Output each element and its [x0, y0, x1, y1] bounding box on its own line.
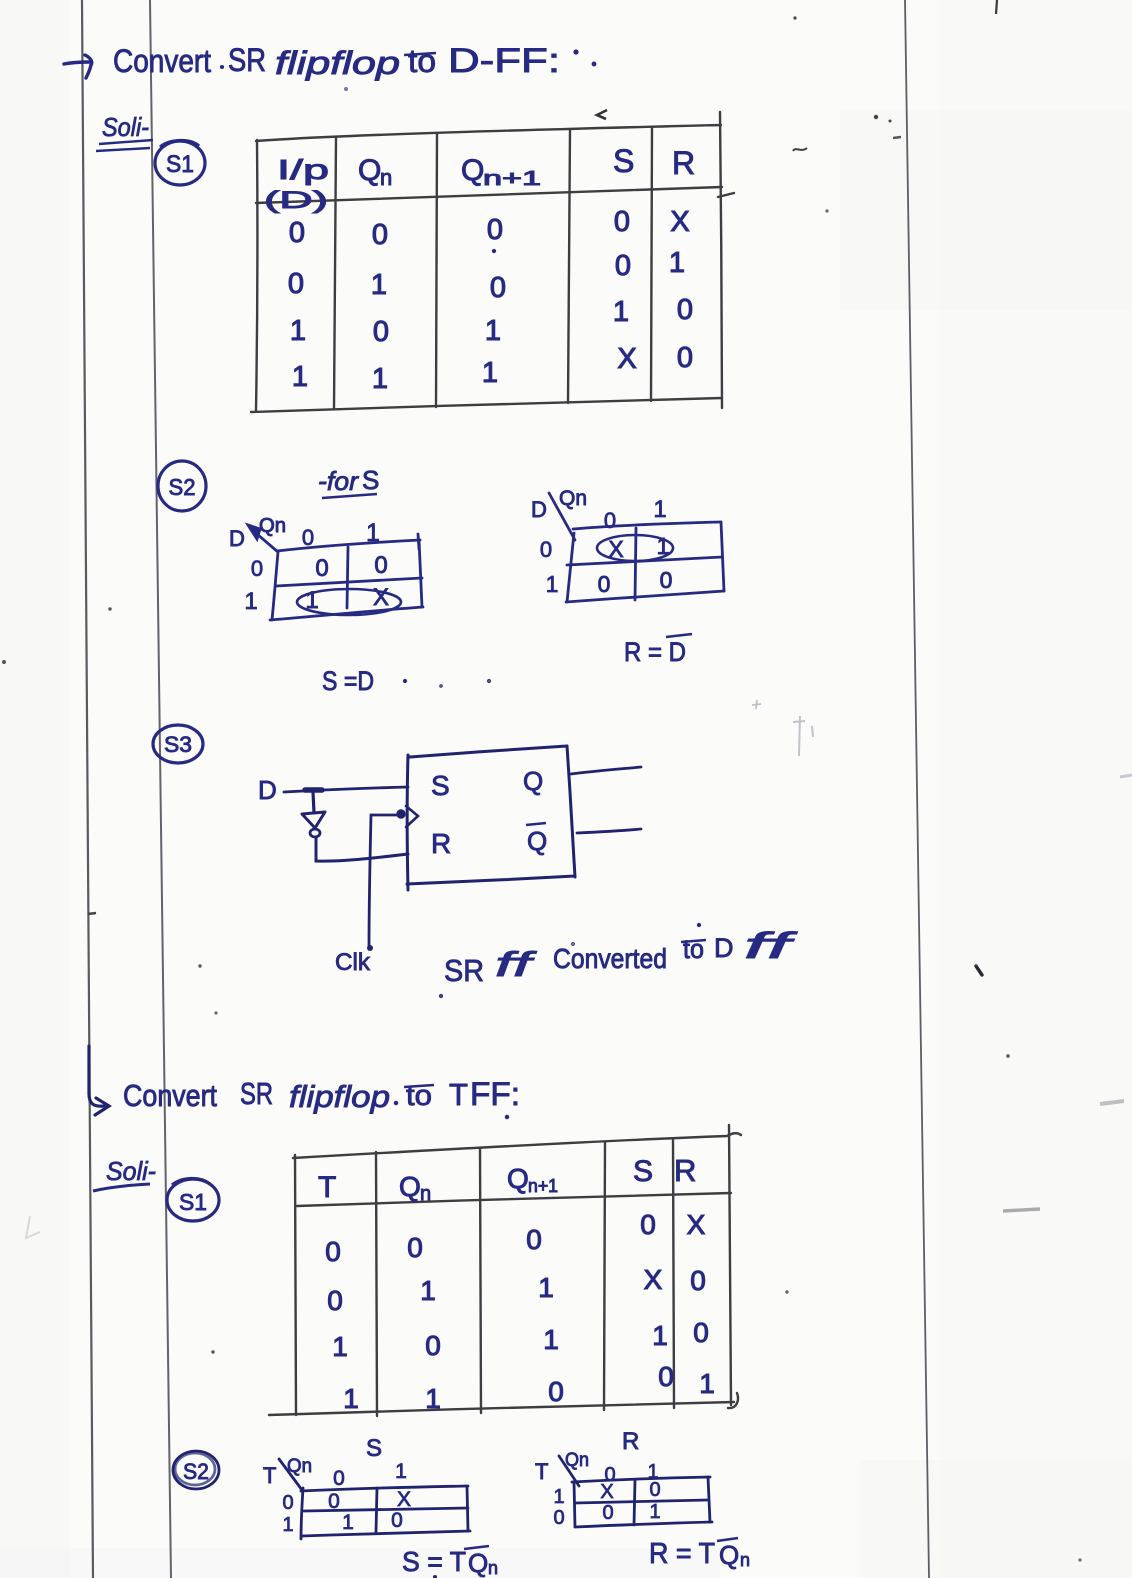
svg-text:T: T: [263, 1463, 276, 1488]
svg-text:0: 0: [548, 1376, 564, 1407]
svg-text:1: 1: [342, 1511, 354, 1534]
svg-text:X: X: [687, 1209, 706, 1240]
svg-text:0: 0: [690, 1265, 706, 1296]
svg-text:0: 0: [374, 552, 387, 579]
svg-text:Qn: Qn: [287, 1456, 312, 1477]
svg-text:flipflop: flipflop: [275, 45, 400, 81]
svg-text:S: S: [633, 1155, 653, 1188]
svg-text:1: 1: [292, 361, 308, 393]
svg-text:0: 0: [425, 1330, 441, 1361]
svg-text:0: 0: [251, 556, 263, 581]
svg-text:0: 0: [598, 571, 611, 597]
svg-text:1: 1: [543, 1324, 559, 1355]
svg-text:R: R: [622, 1428, 639, 1455]
svg-text:S1: S1: [179, 1189, 207, 1215]
svg-text:n+1: n+1: [528, 1176, 558, 1196]
svg-text:S: S: [362, 465, 379, 495]
svg-text:Q: Q: [719, 1540, 739, 1570]
svg-text:n+1: n+1: [483, 168, 541, 190]
svg-text:1: 1: [425, 1383, 441, 1414]
svg-text:X: X: [670, 206, 689, 238]
svg-text:1: 1: [485, 315, 501, 347]
svg-text:1: 1: [395, 1460, 407, 1483]
svg-text:Q: Q: [399, 1171, 421, 1202]
svg-text:n: n: [380, 165, 392, 190]
svg-text:-for: -for: [318, 466, 359, 496]
svg-text:0: 0: [614, 206, 630, 238]
svg-text:Soli-: Soli-: [106, 1156, 156, 1186]
svg-text:1: 1: [244, 588, 257, 615]
svg-text:1: 1: [669, 247, 685, 279]
svg-text:D: D: [714, 933, 734, 963]
svg-text:D: D: [531, 497, 547, 522]
svg-text:0: 0: [658, 1361, 674, 1392]
svg-text:0: 0: [553, 1507, 564, 1529]
svg-text:SR: SR: [228, 42, 266, 78]
svg-text:1: 1: [420, 1275, 436, 1306]
svg-text:0: 0: [373, 316, 389, 348]
svg-text:S3: S3: [164, 732, 192, 757]
svg-text:0: 0: [289, 217, 305, 249]
svg-text:n: n: [420, 1183, 431, 1205]
svg-text:1: 1: [653, 496, 666, 523]
svg-text:1: 1: [332, 1331, 348, 1362]
svg-text:n: n: [740, 1550, 750, 1570]
svg-text:0: 0: [615, 250, 631, 282]
svg-text:Convert: Convert: [113, 43, 211, 79]
svg-text:D: D: [258, 775, 277, 805]
svg-text:1: 1: [546, 571, 559, 597]
svg-text:1: 1: [371, 269, 387, 301]
svg-text:1: 1: [649, 1501, 660, 1523]
svg-text:1: 1: [482, 357, 498, 389]
svg-text:Qn: Qn: [559, 487, 587, 510]
svg-text:I/p: I/p: [277, 154, 329, 185]
svg-text:1: 1: [538, 1272, 554, 1303]
svg-text:1: 1: [652, 1320, 668, 1351]
svg-text:S: S: [366, 1435, 382, 1462]
svg-text:Convert: Convert: [123, 1078, 217, 1113]
svg-text:R = D: R = D: [624, 637, 686, 667]
svg-text:X: X: [617, 343, 636, 375]
svg-text:Converted: Converted: [553, 943, 667, 974]
svg-text:0: 0: [640, 1209, 656, 1240]
svg-text:Q: Q: [358, 154, 381, 187]
svg-text:Q: Q: [523, 766, 543, 796]
svg-text:T: T: [318, 1171, 336, 1204]
svg-text:n: n: [488, 1558, 498, 1578]
svg-text:X: X: [373, 584, 389, 611]
svg-text:0: 0: [288, 268, 304, 300]
svg-text:1: 1: [366, 519, 380, 547]
svg-text:0: 0: [677, 294, 693, 326]
svg-text:0: 0: [327, 1285, 343, 1316]
svg-text:T: T: [535, 1459, 548, 1484]
svg-text:0: 0: [407, 1232, 423, 1263]
svg-text:0: 0: [391, 1509, 403, 1532]
svg-text:Q: Q: [461, 154, 484, 187]
svg-text:to: to: [683, 934, 704, 964]
svg-text:Soli-: Soli-: [102, 112, 149, 142]
svg-text:0: 0: [325, 1236, 341, 1267]
svg-text:1: 1: [290, 315, 306, 347]
svg-text:1: 1: [699, 1368, 715, 1399]
svg-text:Clk: Clk: [335, 949, 371, 976]
svg-text:1: 1: [553, 1486, 564, 1508]
svg-text:0: 0: [302, 525, 314, 550]
svg-text:Qn: Qn: [565, 1450, 589, 1471]
svg-text:0: 0: [333, 1467, 345, 1490]
svg-text:0: 0: [540, 537, 552, 562]
svg-text:1: 1: [372, 363, 388, 395]
svg-text:0: 0: [487, 214, 503, 246]
svg-text:1: 1: [282, 1514, 293, 1536]
svg-text:S2: S2: [183, 1459, 209, 1484]
svg-text:R: R: [672, 145, 695, 181]
svg-text:X: X: [644, 1264, 663, 1295]
svg-text:1: 1: [613, 296, 629, 328]
svg-text:S: S: [613, 143, 634, 179]
svg-text:flipflop: flipflop: [289, 1079, 390, 1114]
svg-text:FF:: FF:: [470, 1076, 520, 1112]
svg-text:S = T: S = T: [402, 1546, 466, 1577]
svg-text:0: 0: [328, 1490, 340, 1513]
svg-text:Q: Q: [507, 1163, 529, 1194]
svg-text:X: X: [600, 1481, 613, 1503]
svg-text:to: to: [408, 43, 436, 79]
svg-text:S =D: S =D: [322, 666, 374, 696]
svg-text:0: 0: [602, 1502, 613, 1524]
svg-text:Q: Q: [468, 1548, 488, 1578]
svg-text:0: 0: [604, 508, 616, 533]
svg-text:T: T: [449, 1077, 468, 1112]
svg-text:Q: Q: [527, 826, 547, 856]
svg-text:0: 0: [649, 1479, 660, 1501]
svg-text:0: 0: [282, 1492, 293, 1514]
svg-text:R: R: [674, 1153, 696, 1188]
svg-text:0: 0: [372, 219, 388, 251]
svg-text:0: 0: [490, 272, 506, 304]
svg-text:0: 0: [677, 342, 693, 374]
svg-text:1: 1: [343, 1383, 359, 1414]
svg-text:SR: SR: [240, 1076, 273, 1111]
svg-text:SR: SR: [444, 953, 484, 988]
svg-text:S2: S2: [169, 474, 196, 500]
svg-text:Qn: Qn: [259, 515, 286, 537]
svg-text:(D): (D): [264, 187, 328, 214]
svg-text:R = T: R = T: [649, 1538, 715, 1570]
svg-text:0: 0: [526, 1224, 542, 1255]
svg-text:0: 0: [315, 555, 328, 582]
svg-text:S1: S1: [166, 151, 194, 178]
svg-text:S: S: [431, 770, 450, 801]
svg-text:R: R: [431, 828, 451, 859]
svg-text:D-FF:: D-FF:: [448, 42, 560, 80]
svg-text:X: X: [397, 1488, 411, 1511]
svg-text:0: 0: [693, 1317, 709, 1348]
svg-text:0: 0: [660, 567, 673, 593]
svg-text:D: D: [229, 526, 245, 551]
